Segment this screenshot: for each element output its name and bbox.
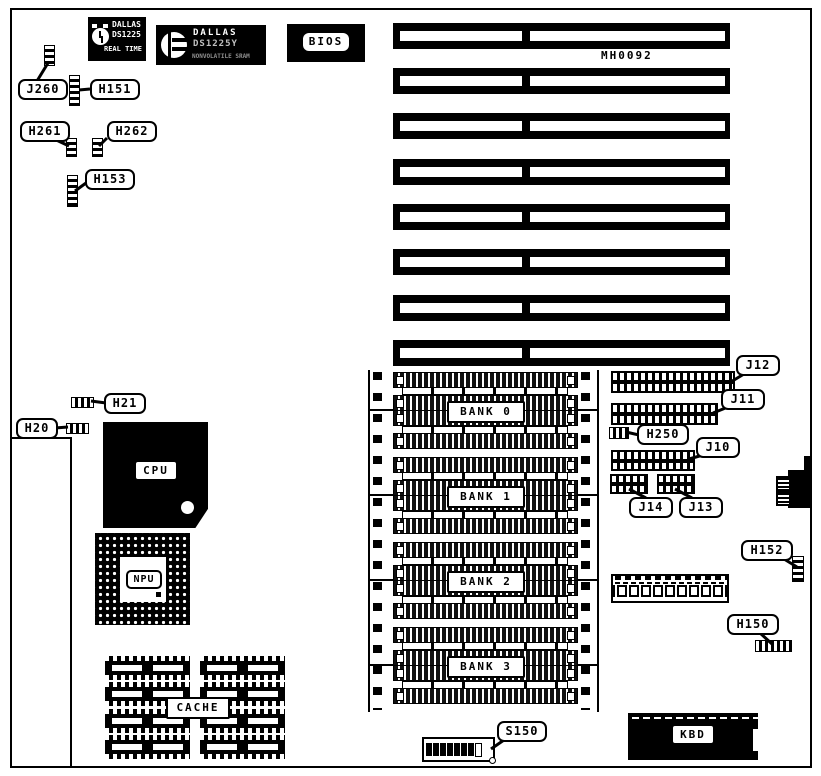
npu-socket: NPU bbox=[95, 533, 190, 625]
jumper-h261 bbox=[66, 138, 77, 157]
cpu-label: CPU bbox=[136, 462, 176, 479]
isa-slot-7 bbox=[393, 295, 730, 321]
bank0-label: BANK 0 bbox=[447, 401, 525, 423]
simm-latch-column-right bbox=[581, 372, 590, 710]
switch-cell bbox=[454, 743, 460, 756]
cache-chip bbox=[105, 735, 190, 759]
simm-rail-right bbox=[597, 370, 599, 712]
sram-chip-part: DS1225Y bbox=[193, 39, 238, 49]
bios-label: BIOS bbox=[303, 33, 349, 51]
cache-chip bbox=[200, 656, 285, 680]
simm-socket bbox=[393, 627, 578, 643]
bios-chip: BIOS bbox=[287, 24, 365, 62]
callout-h20: H20 bbox=[16, 418, 58, 439]
simm-rail-left bbox=[368, 370, 370, 712]
header-j14 bbox=[610, 474, 648, 494]
cpu-pin1-dot bbox=[181, 501, 194, 514]
callout-j13: J13 bbox=[679, 497, 723, 518]
simm-spacer bbox=[402, 557, 568, 565]
sram-chip-subtitle: NONVOLATILE SRAM bbox=[192, 53, 250, 60]
rtc-chip-subtitle: REAL TIME bbox=[104, 45, 142, 53]
dip-switch-s150 bbox=[422, 737, 495, 762]
keyboard-connector-step bbox=[804, 456, 812, 470]
rtc-chip-name: DALLAS bbox=[112, 21, 141, 29]
sram-chip: DALLAS DS1225Y NONVOLATILE SRAM bbox=[156, 25, 266, 65]
isa-slot-6 bbox=[393, 249, 730, 275]
switch-cell bbox=[468, 743, 474, 756]
rtc-chip: DALLAS DS1225 REAL TIME bbox=[88, 17, 146, 61]
jumper-h262 bbox=[92, 138, 103, 157]
simm-socket bbox=[393, 542, 578, 558]
callout-j12: J12 bbox=[736, 355, 780, 376]
callout-j10: J10 bbox=[696, 437, 740, 458]
simm-spacer bbox=[402, 387, 568, 395]
callout-h250: H250 bbox=[637, 424, 689, 445]
jumper-j260 bbox=[44, 45, 55, 66]
simm-spacer bbox=[402, 642, 568, 650]
switch-cell bbox=[426, 743, 432, 756]
switch-cell bbox=[440, 743, 446, 756]
jumper-h150 bbox=[755, 640, 792, 652]
switch-cell bbox=[433, 743, 439, 756]
board-edge-step-vertical bbox=[70, 437, 72, 766]
callout-h262: H262 bbox=[107, 121, 157, 142]
switch-corner-dot bbox=[489, 757, 496, 764]
callout-h21: H21 bbox=[104, 393, 146, 414]
isa-slot-2 bbox=[393, 68, 730, 94]
isa-slot-4 bbox=[393, 159, 730, 185]
simm-socket bbox=[393, 457, 578, 473]
callout-h150: H150 bbox=[727, 614, 779, 635]
callout-j11: J11 bbox=[721, 389, 765, 410]
jumper-h151 bbox=[69, 75, 80, 106]
simm-socket bbox=[393, 603, 578, 619]
alarm-clock-icon bbox=[92, 28, 109, 45]
callout-h153: H153 bbox=[85, 169, 135, 190]
callout-j14: J14 bbox=[629, 497, 673, 518]
npu-center: NPU bbox=[120, 557, 166, 602]
callout-h152: H152 bbox=[741, 540, 793, 561]
dallas-logo-icon bbox=[161, 32, 187, 58]
switch-cell bbox=[461, 743, 467, 756]
simm-latch-column-left bbox=[373, 372, 382, 710]
cache-chip bbox=[200, 735, 285, 759]
isa-slot-1 bbox=[393, 23, 730, 49]
simm-socket bbox=[393, 518, 578, 534]
simm-socket bbox=[393, 372, 578, 388]
isa-slot-8 bbox=[393, 340, 730, 366]
diagram-code: MH0092 bbox=[601, 49, 653, 62]
keyboard-connector-body bbox=[788, 470, 812, 508]
kbd-notch bbox=[753, 729, 758, 751]
callout-h151: H151 bbox=[90, 79, 140, 100]
header-j11 bbox=[611, 403, 718, 425]
header-j10 bbox=[611, 450, 695, 471]
header-j13 bbox=[657, 474, 695, 494]
kbd-label: KBD bbox=[673, 726, 713, 743]
bank3-label: BANK 3 bbox=[447, 656, 525, 678]
callout-j260: J260 bbox=[18, 79, 68, 100]
cache-label: CACHE bbox=[166, 697, 230, 719]
jumper-h20 bbox=[66, 423, 89, 434]
jumper-h153 bbox=[67, 175, 78, 207]
sram-chip-name: DALLAS bbox=[193, 28, 238, 38]
switch-cell-open bbox=[475, 743, 482, 757]
isa-slot-3 bbox=[393, 113, 730, 139]
jumper-h152 bbox=[792, 556, 804, 582]
simm-socket bbox=[393, 688, 578, 704]
cpu-chip: CPU bbox=[103, 422, 208, 528]
kbd-connector-block: KBD bbox=[628, 713, 758, 760]
jumper-h21 bbox=[71, 397, 94, 408]
callout-s150: S150 bbox=[497, 721, 547, 742]
simm-spacer bbox=[402, 472, 568, 480]
rtc-chip-part: DS1225 bbox=[112, 31, 141, 39]
motherboard-diagram: MH0092 DALLAS DS1225 REAL TIME DALLAS DS… bbox=[0, 0, 821, 776]
bank2-label: BANK 2 bbox=[447, 571, 525, 593]
npu-label: NPU bbox=[126, 570, 162, 589]
keyboard-connector-pin bbox=[776, 491, 791, 506]
bank1-label: BANK 1 bbox=[447, 486, 525, 508]
switch-cell bbox=[447, 743, 453, 756]
isa-slot-5 bbox=[393, 204, 730, 230]
power-connector bbox=[611, 574, 729, 603]
callout-h261: H261 bbox=[20, 121, 70, 142]
jumper-h250 bbox=[609, 427, 629, 439]
keyboard-connector-pin bbox=[776, 476, 791, 491]
simm-socket bbox=[393, 433, 578, 449]
cache-chip bbox=[105, 656, 190, 680]
header-j12 bbox=[611, 371, 735, 393]
